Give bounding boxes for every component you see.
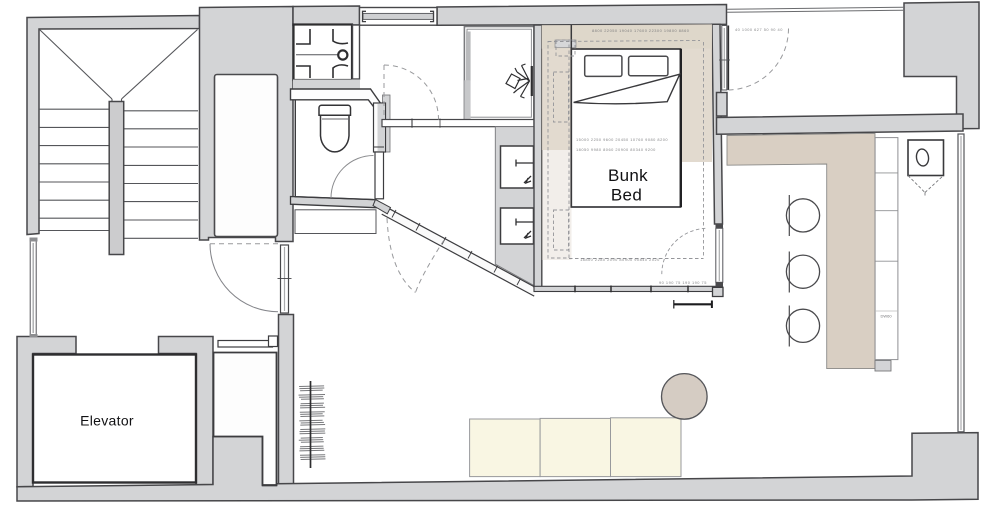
svg-text:40 1000 627 50 90 40: 40 1000 627 50 90 40: [735, 27, 783, 32]
svg-text:18800 2280 2090 80900 90840 20: 18800 2280 2090 80900 90840 2020: [580, 257, 660, 262]
svg-text:90 190 75 190 190 75: 90 190 75 190 190 75: [659, 280, 707, 285]
svg-text:8800 22050 19040 17600 22300 1: 8800 22050 19040 17600 22300 19800 8860: [592, 28, 690, 33]
svg-text:DW60: DW60: [880, 314, 892, 319]
svg-text:Bed: Bed: [611, 186, 642, 205]
svg-text:18050 9980 8060 20900 80340 92: 18050 9980 8060 20900 80340 9200: [576, 147, 656, 152]
svg-text:Elevator: Elevator: [80, 413, 134, 429]
svg-text:Bunk: Bunk: [608, 166, 648, 185]
svg-text:15000 2250 9600 20450 10760 90: 15000 2250 9600 20450 10760 9080 8200: [576, 137, 668, 142]
